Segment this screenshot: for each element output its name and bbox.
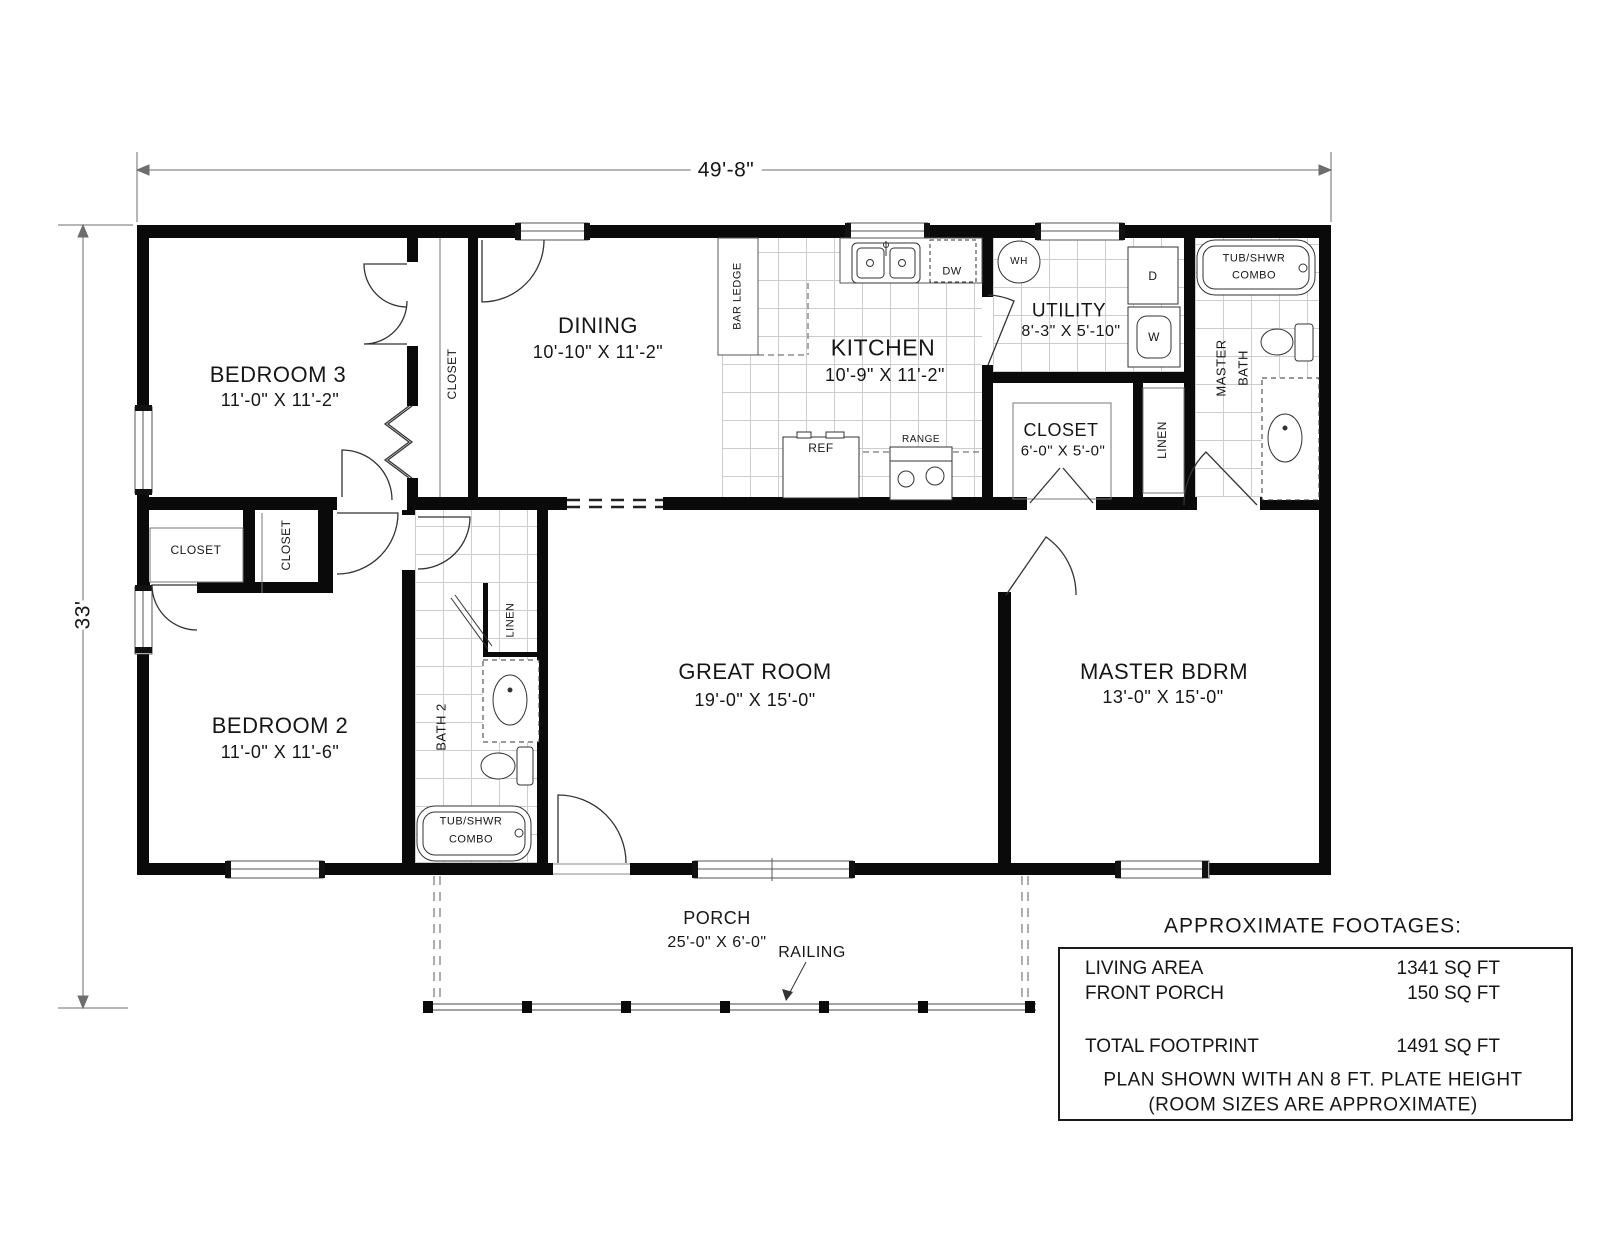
bar-ledge-label: BAR LEDGE bbox=[733, 262, 744, 329]
bath2-label: BATH 2 bbox=[435, 703, 448, 751]
master-bedroom-name: MASTER BDRM bbox=[1080, 661, 1248, 683]
bath2-shower-door bbox=[451, 595, 492, 649]
window-great-room bbox=[692, 858, 855, 881]
porch-railing bbox=[423, 962, 1036, 1013]
bedroom3-name: BEDROOM 3 bbox=[210, 364, 347, 386]
hall-closet-label: CLOSET bbox=[280, 519, 292, 570]
kitchen-size: 10'-9" X 11'-2" bbox=[825, 366, 945, 384]
footages-row-label: FRONT PORCH bbox=[1085, 983, 1224, 1005]
bath2-linen-label: LINEN bbox=[506, 603, 517, 638]
footages-row-label: LIVING AREA bbox=[1085, 958, 1203, 980]
range-box bbox=[890, 447, 952, 500]
footages-row-label: TOTAL FOOTPRINT bbox=[1085, 1036, 1259, 1058]
master-toilet bbox=[1261, 324, 1313, 361]
dining-size: 10'-10" X 11'-2" bbox=[533, 343, 663, 361]
kitchen-sink bbox=[852, 241, 920, 283]
overall-depth-dimension: 33' bbox=[66, 601, 101, 630]
footages-note: (ROOM SIZES ARE APPROXIMATE) bbox=[1148, 1096, 1477, 1115]
bedroom2-closet-label: CLOSET bbox=[170, 544, 221, 556]
master-tub-label-1: TUB/SHWR bbox=[1223, 254, 1286, 265]
window-dining bbox=[515, 223, 590, 240]
dishwasher-label: DW bbox=[942, 267, 961, 278]
washer-label: W bbox=[1148, 331, 1160, 343]
range-label: RANGE bbox=[902, 435, 940, 445]
window-utility bbox=[1035, 223, 1125, 240]
refrigerator-label: REF bbox=[808, 442, 834, 454]
master-tub bbox=[1197, 240, 1315, 295]
dryer-label: D bbox=[1148, 270, 1157, 282]
window-bedroom2-side bbox=[135, 585, 152, 654]
master-tub-label-2: COMBO bbox=[1232, 271, 1276, 282]
utility-closet-name: CLOSET bbox=[1023, 421, 1098, 439]
bath2-vanity bbox=[483, 660, 539, 742]
great-room-name: GREAT ROOM bbox=[678, 661, 831, 683]
overall-width-dimension: 49'-8" bbox=[691, 160, 762, 181]
utility-linen-label: LINEN bbox=[1156, 421, 1168, 459]
bath2-toilet bbox=[481, 747, 533, 785]
bath2-tub-label-2: COMBO bbox=[449, 835, 493, 846]
water-heater-label: WH bbox=[1010, 257, 1028, 267]
bedroom3-closet-label: CLOSET bbox=[446, 348, 458, 399]
footages-note: PLAN SHOWN WITH AN 8 FT. PLATE HEIGHT bbox=[1103, 1071, 1522, 1090]
bedroom2-size: 11'-0" X 11'-6" bbox=[221, 743, 340, 761]
great-room-size: 19'-0" X 15'-0" bbox=[694, 691, 815, 709]
window-kitchen bbox=[845, 223, 930, 240]
window-bedroom2 bbox=[225, 861, 325, 878]
window-bedroom3 bbox=[135, 405, 152, 495]
railing-label: RAILING bbox=[778, 945, 846, 961]
porch-name: PORCH bbox=[683, 909, 751, 927]
footages-row-value: 1491 SQ FT bbox=[1397, 1036, 1501, 1058]
closet-shelves bbox=[150, 238, 1184, 593]
porch-size: 25'-0" X 6'-0" bbox=[667, 935, 766, 951]
utility-name: UTILITY bbox=[1032, 302, 1106, 321]
footages-row-value: 1341 SQ FT bbox=[1397, 958, 1501, 980]
master-vanity bbox=[1262, 378, 1319, 500]
window-master-bedroom bbox=[1115, 861, 1209, 878]
master-bath-label-2: BATH bbox=[1237, 350, 1250, 386]
bedroom3-size: 11'-0" X 11'-2" bbox=[221, 391, 340, 409]
dining-name: DINING bbox=[558, 315, 638, 337]
footages-row-value: 150 SQ FT bbox=[1407, 983, 1500, 1005]
kitchen-name: KITCHEN bbox=[831, 337, 935, 360]
master-bedroom-size: 13'-0" X 15'-0" bbox=[1102, 688, 1223, 706]
bath2-tub-label-1: TUB/SHWR bbox=[440, 817, 503, 828]
bedroom2-name: BEDROOM 2 bbox=[212, 715, 349, 737]
floor-plan: 49'-8" 33' BEDROOM 3 11'-0" X 11'-2" DIN… bbox=[0, 0, 1600, 1236]
utility-size: 8'-3" X 5'-10" bbox=[1021, 324, 1120, 340]
footages-title: APPROXIMATE FOOTAGES: bbox=[1164, 916, 1462, 937]
cased-opening bbox=[567, 500, 663, 507]
master-bath-label-1: MASTER bbox=[1215, 339, 1228, 396]
utility-closet-size: 6'-0" X 5'-0" bbox=[1021, 444, 1106, 459]
